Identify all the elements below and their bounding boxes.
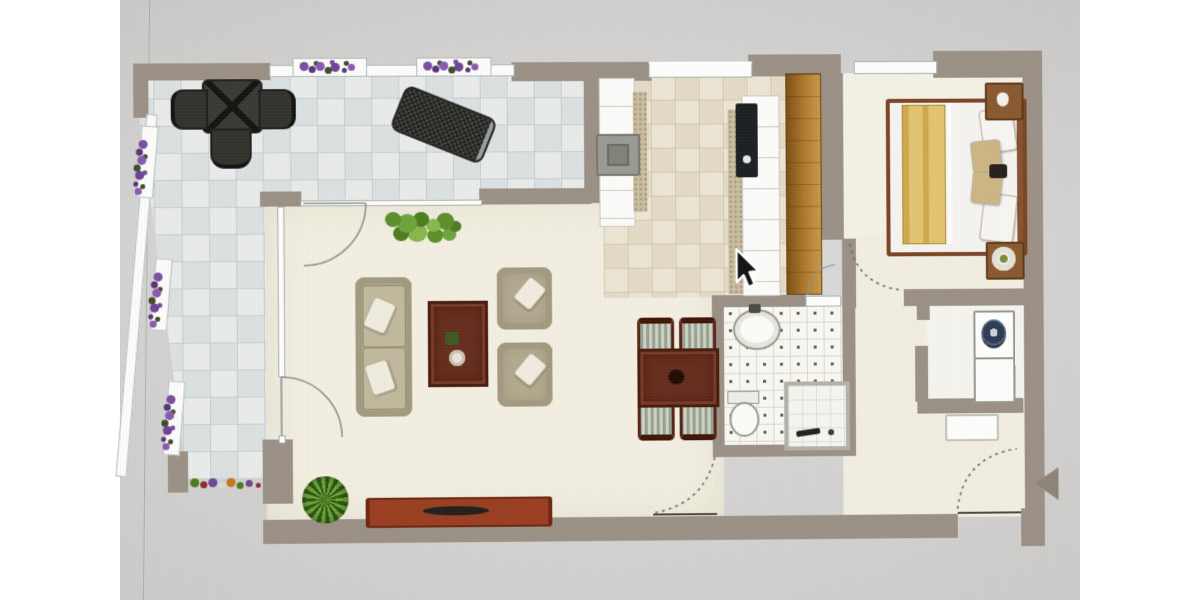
entrance-arrow-icon <box>1035 467 1059 500</box>
door-swing-entry-hall-dashed <box>655 457 715 512</box>
door-leaf-entrance <box>958 512 1021 513</box>
door-swing-living-left <box>281 377 342 438</box>
door-swing-bedroom-dashed <box>850 243 902 290</box>
door-leaf-entry-hall <box>653 514 717 515</box>
floor-plan <box>0 0 1197 600</box>
screenshot-root: { "scene": { "kind": "floor-plan-photo",… <box>0 0 1200 600</box>
door-swing-living-top <box>303 203 366 266</box>
door-swing-entrance-dashed <box>957 449 1017 509</box>
plan-overlay <box>0 0 1197 600</box>
door-swing-bathroom <box>807 265 835 295</box>
mouse-cursor-icon <box>736 249 758 287</box>
